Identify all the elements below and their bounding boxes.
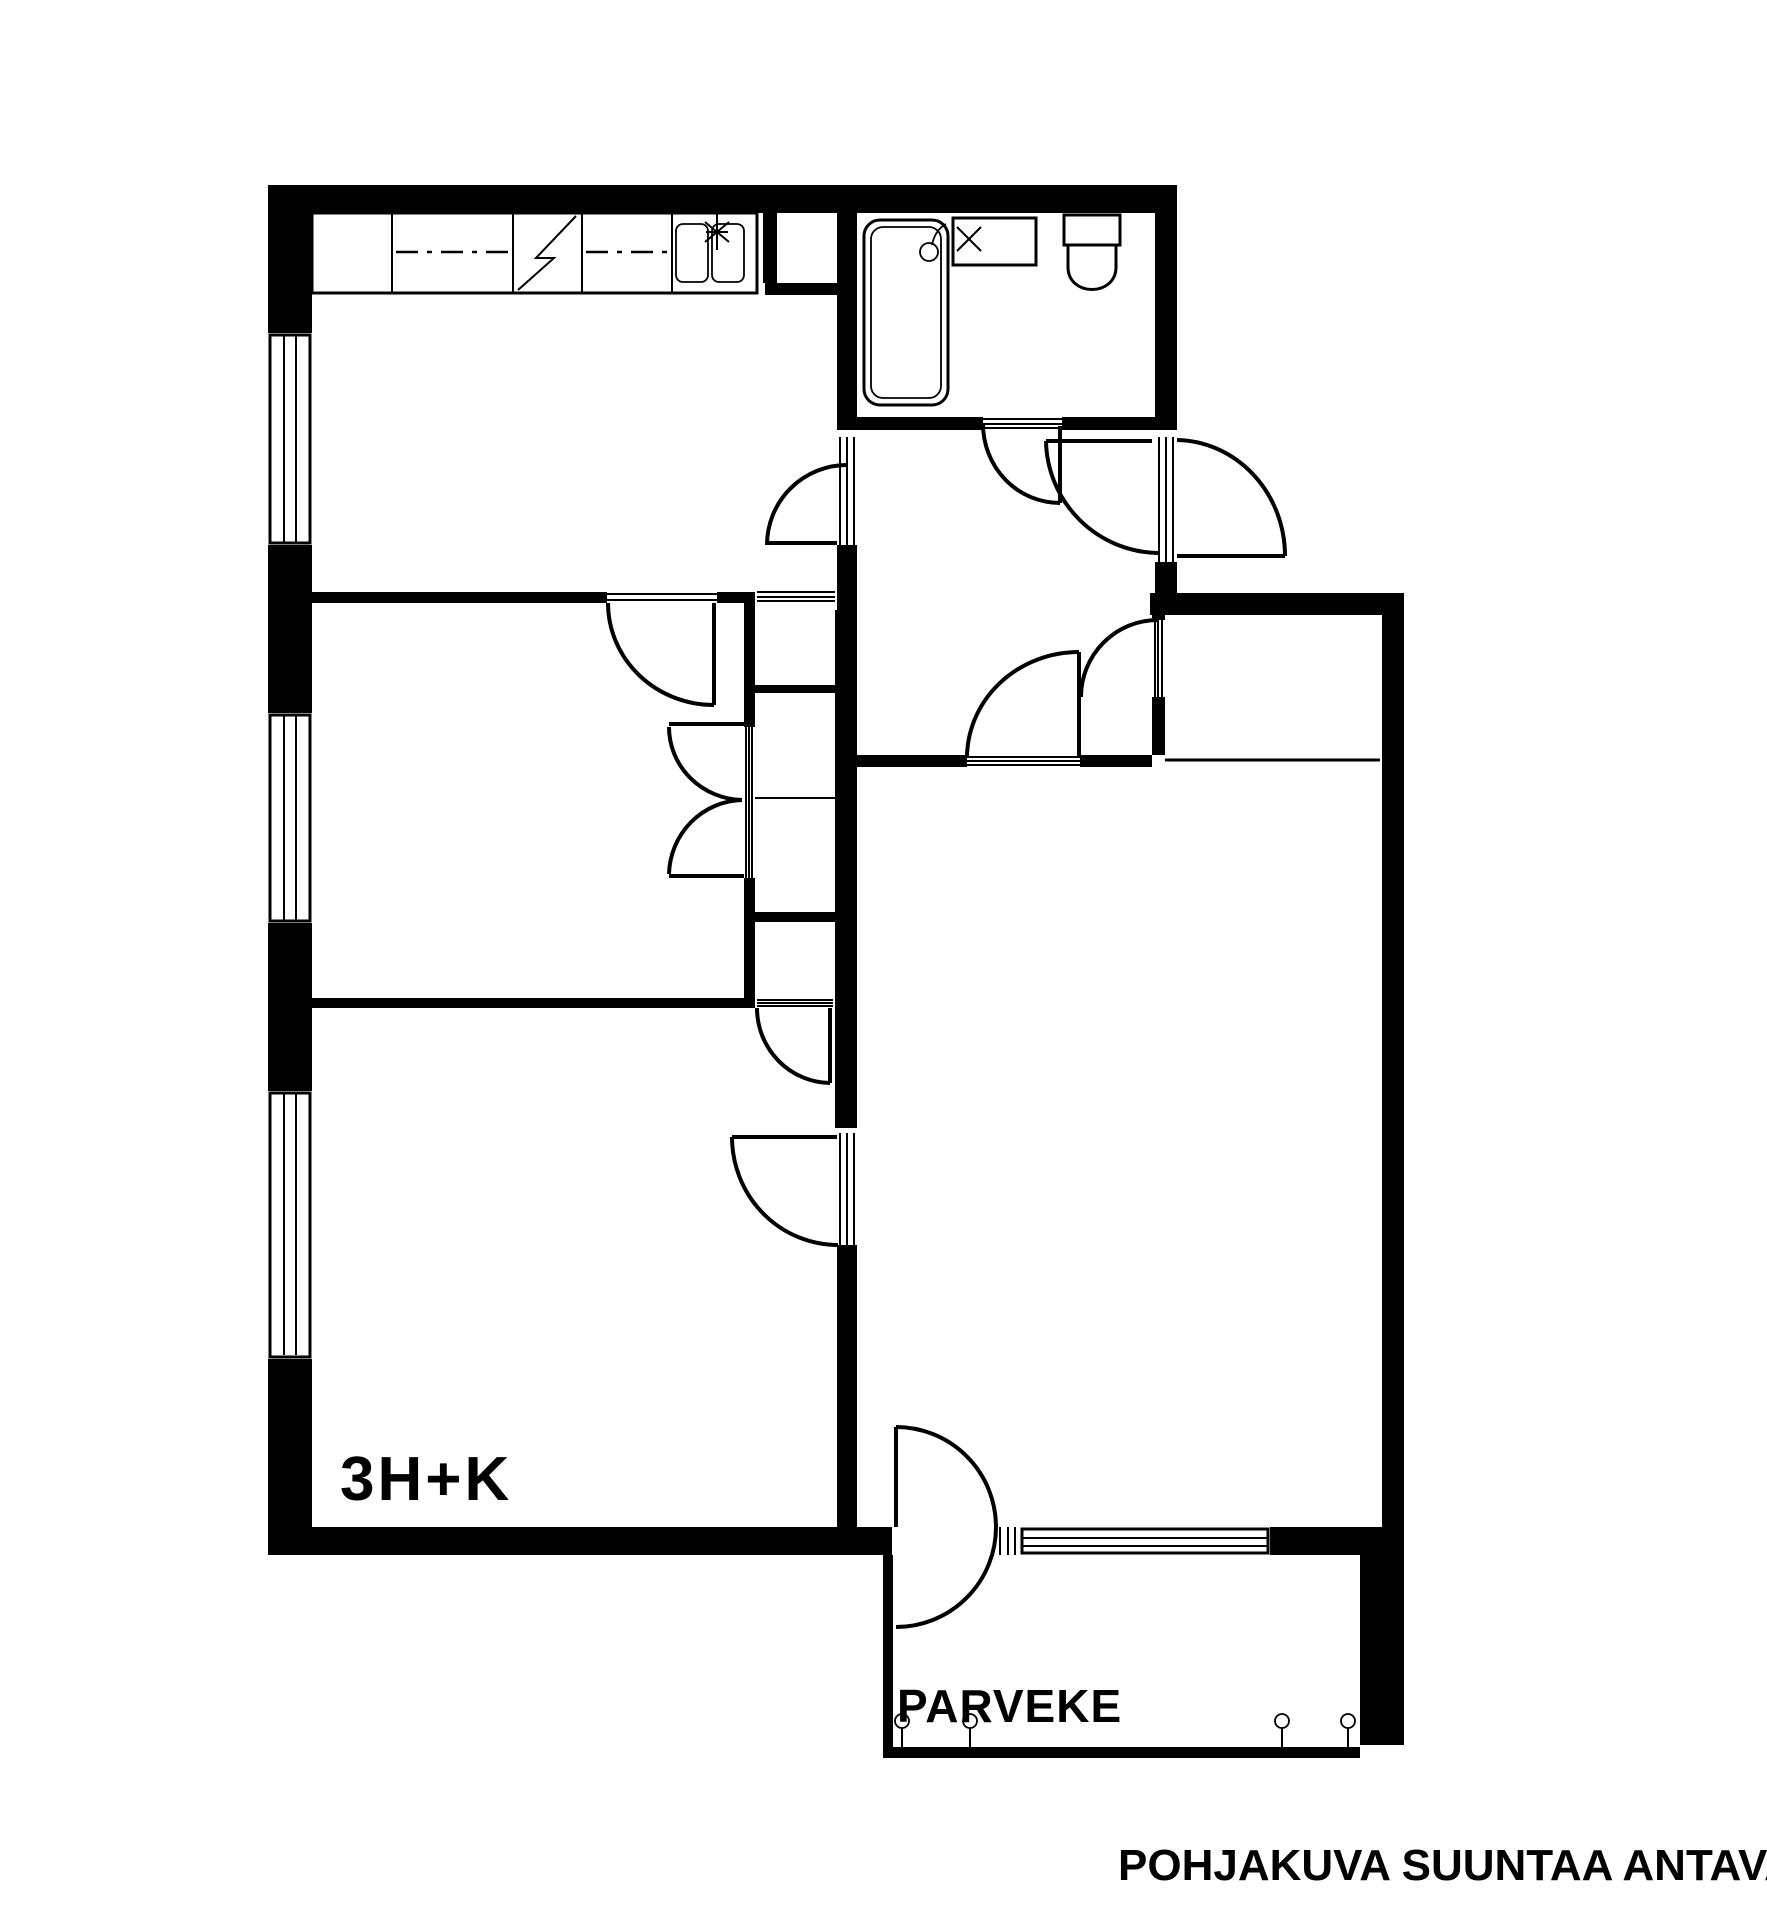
toilet-icon: [1064, 215, 1120, 290]
disclaimer-text: POHJAKUVA SUUNTAA ANTAVA: [1118, 1841, 1767, 1890]
bathtub-icon: [864, 220, 948, 405]
window-icon: [268, 333, 312, 1359]
room-label-unit: 3H+K: [340, 1445, 512, 1514]
room-label-balcony: PARVEKE: [897, 1680, 1122, 1732]
floor-plan-drawing: 3H+K PARVEKE POHJAKUVA SUUNTAA ANTAVA: [0, 0, 1767, 1920]
bathroom-sink-icon: [953, 218, 1036, 265]
window-icon: [1020, 1527, 1270, 1555]
floor-plan-page: 3H+K PARVEKE POHJAKUVA SUUNTAA ANTAVA: [0, 0, 1767, 1920]
